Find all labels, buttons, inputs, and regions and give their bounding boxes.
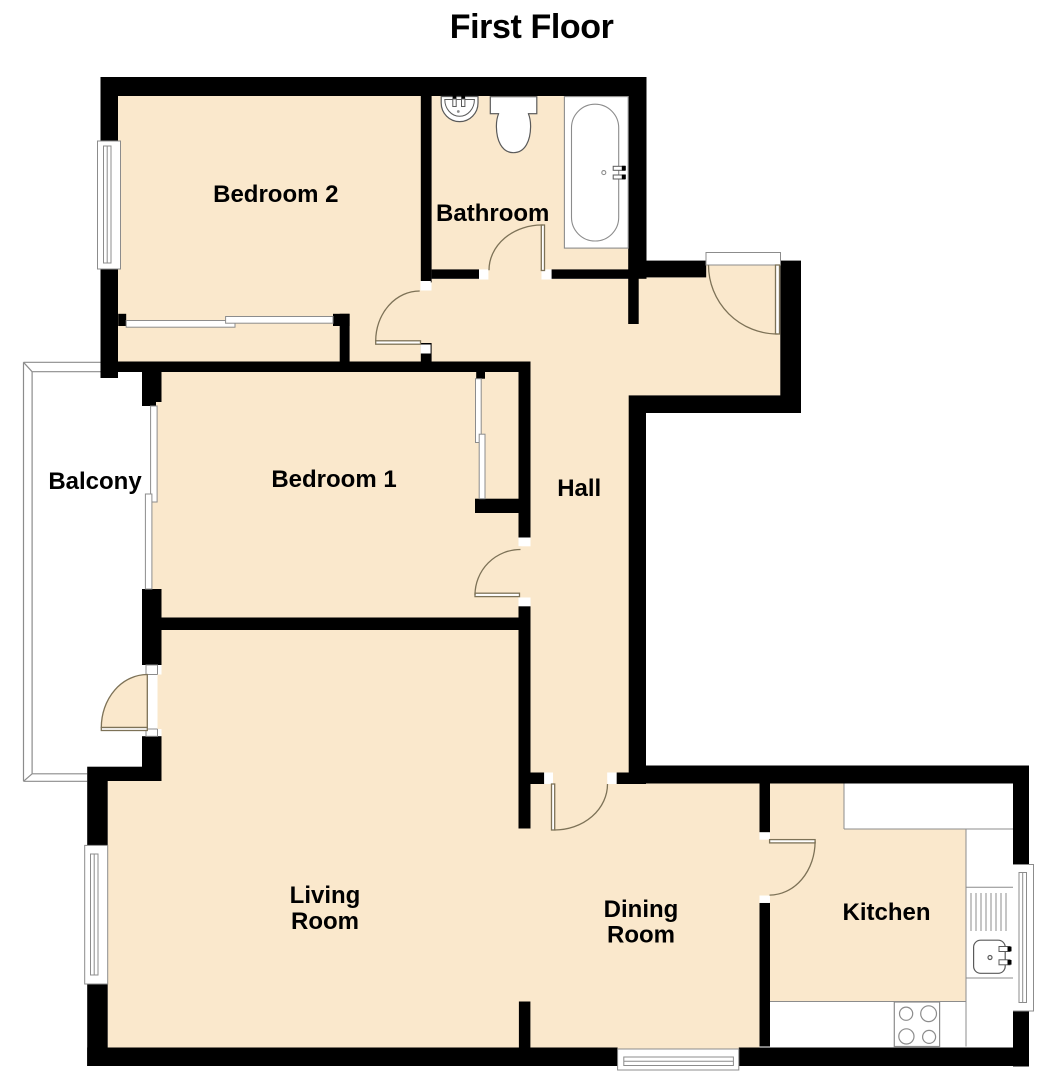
- svg-text:Bathroom: Bathroom: [436, 200, 549, 227]
- svg-text:First Floor: First Floor: [450, 8, 614, 46]
- svg-text:Balcony: Balcony: [48, 468, 142, 495]
- svg-text:Room: Room: [607, 922, 675, 949]
- svg-text:Living: Living: [290, 882, 361, 909]
- svg-text:Room: Room: [291, 908, 359, 935]
- svg-text:Bedroom 2: Bedroom 2: [213, 181, 338, 208]
- svg-text:Kitchen: Kitchen: [842, 899, 930, 926]
- svg-text:Bedroom 1: Bedroom 1: [271, 466, 396, 493]
- svg-text:Dining: Dining: [604, 896, 679, 923]
- svg-text:Hall: Hall: [557, 475, 601, 502]
